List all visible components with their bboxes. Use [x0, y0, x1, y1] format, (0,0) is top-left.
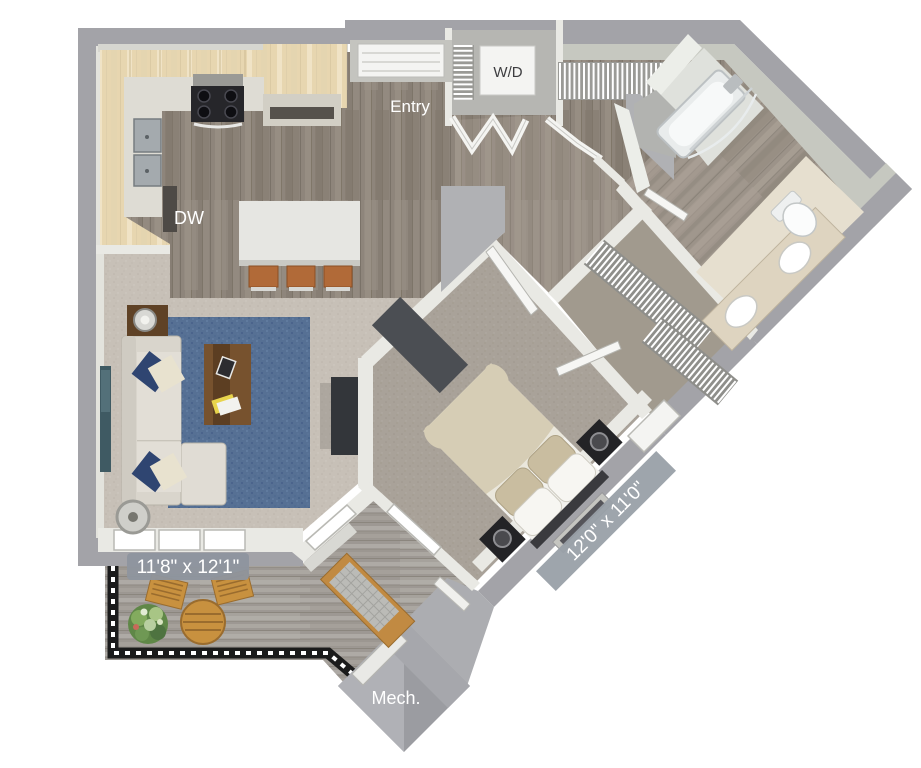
svg-text:11'8" x 12'1": 11'8" x 12'1" [137, 557, 240, 578]
svg-text:Mech.: Mech. [371, 688, 420, 708]
svg-text:W/D: W/D [493, 64, 522, 81]
svg-text:Entry: Entry [390, 97, 430, 116]
svg-text:DW: DW [174, 208, 204, 228]
